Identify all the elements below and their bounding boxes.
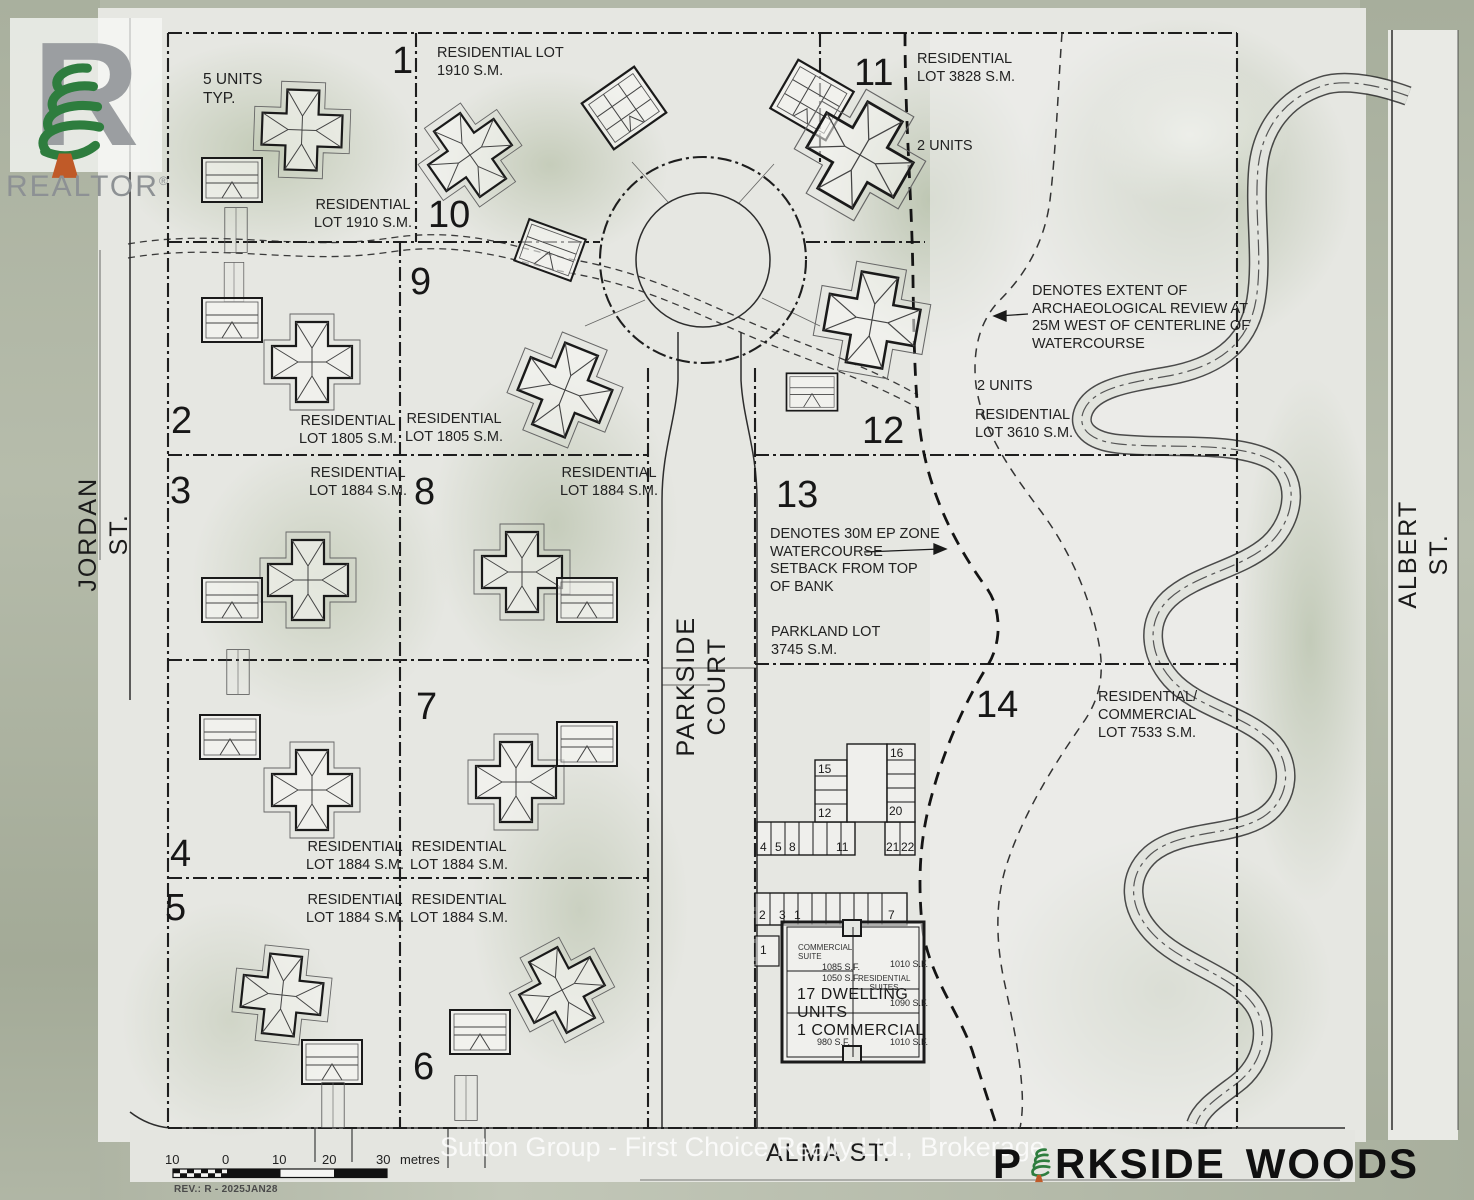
ep-zone-shading xyxy=(930,34,1237,1128)
lot-4-label: RESIDENTIAL LOT 1884 S.M. xyxy=(295,838,415,874)
unit-2: 2 xyxy=(759,908,766,923)
unit-11: 11 xyxy=(836,840,848,855)
scale-0: 0 xyxy=(222,1152,229,1168)
unit-8: 8 xyxy=(789,840,796,855)
lot-7-label: RESIDENTIAL LOT 1884 S.M. xyxy=(399,838,519,874)
lot-4-number: 4 xyxy=(170,831,191,879)
title-p: P xyxy=(993,1140,1023,1188)
title-rkside: RKSIDE xyxy=(1055,1140,1226,1188)
unit-4: 4 xyxy=(760,840,767,855)
realtor-wordmark: REALTOR® xyxy=(6,170,166,204)
lot-12-label: RESIDENTIAL LOT 3610 S.M. xyxy=(975,406,1073,442)
lot-14-number: 14 xyxy=(976,682,1018,730)
realtor-logo: R REALTOR® xyxy=(4,10,174,210)
title-pine-tree-icon xyxy=(1024,1142,1054,1188)
lot-2-label: RESIDENTIAL LOT 1805 S.M. xyxy=(288,412,408,448)
pine-tree-icon xyxy=(10,54,120,186)
unit-3: 3 xyxy=(779,908,786,923)
lot-11-number: 11 xyxy=(854,50,893,98)
realtor-text: REALTOR xyxy=(6,170,159,203)
lot-9-label: RESIDENTIAL LOT 1805 S.M. xyxy=(394,410,514,446)
lot-12-number: 12 xyxy=(862,408,904,456)
parkland-note: PARKLAND LOT 3745 S.M. xyxy=(771,623,880,659)
street-label-parkside-court: PARKSIDE COURT xyxy=(671,576,734,796)
lot-10-number: 10 xyxy=(428,192,470,240)
lot-6-label: RESIDENTIAL LOT 1884 S.M. xyxy=(399,891,519,927)
area-1090: 1090 S.F. xyxy=(890,998,928,1009)
lot-1-number: 1 xyxy=(392,38,413,86)
title-woods: WOODS xyxy=(1246,1140,1419,1188)
area-1085: 1085 S.F. xyxy=(822,962,860,973)
unit-5: 5 xyxy=(775,840,782,855)
lot-11-units: 2 UNITS xyxy=(917,137,973,155)
unit-15: 15 xyxy=(818,762,831,777)
registered-symbol: ® xyxy=(159,174,170,188)
lot-5-number: 5 xyxy=(165,885,186,933)
development-title: P RKSIDE WOODS xyxy=(993,1140,1419,1188)
lot-8-label: RESIDENTIAL LOT 1884 S.M. xyxy=(549,464,669,500)
lot-1-label: RESIDENTIAL LOT 1910 S.M. xyxy=(437,44,564,80)
lot-6-number: 6 xyxy=(413,1044,434,1092)
lot-3-label: RESIDENTIAL LOT 1884 S.M. xyxy=(298,464,418,500)
scale-30: 30 xyxy=(376,1152,390,1168)
unit-16: 16 xyxy=(890,746,903,761)
area-1010-bottom: 1010 S.F. xyxy=(890,1037,928,1048)
lot-10-label: RESIDENTIAL LOT 1910 S.M. xyxy=(303,196,423,232)
unit-22: 22 xyxy=(901,840,914,855)
site-plan-canvas: JORDAN ST. ALBERT ST. PARKSIDE COURT ALM… xyxy=(0,0,1474,1200)
lot-7-number: 7 xyxy=(416,684,437,732)
scale-unit: metres xyxy=(400,1152,440,1168)
lot-14-label: RESIDENTIAL/ COMMERCIAL LOT 7533 S.M. xyxy=(1098,688,1197,742)
brokerage-watermark: Sutton Group - First Choice Realty Ltd.,… xyxy=(440,1131,1045,1165)
five-units-note: 5 UNITS TYP. xyxy=(203,70,262,109)
unit-1b: 1 xyxy=(760,943,767,958)
area-1050: 1050 S.F. xyxy=(822,973,860,984)
street-label-albert: ALBERT ST. xyxy=(1393,479,1456,629)
lot-2-number: 2 xyxy=(171,398,192,446)
unit-12: 12 xyxy=(818,806,831,821)
unit-21: 21 xyxy=(886,840,899,855)
unit-1: 1 xyxy=(794,908,801,923)
street-label-jordan: JORDAN ST. xyxy=(73,459,136,609)
commercial-suite-label: COMMERCIAL SUITE xyxy=(798,943,852,961)
unit-20: 20 xyxy=(889,804,902,819)
scale-20: 20 xyxy=(322,1152,336,1168)
area-980: 980 S.F. xyxy=(817,1037,850,1048)
revision-note: REV.: R - 2025JAN28 xyxy=(174,1184,278,1197)
residential-suites-label: RESIDENTIAL SUITES xyxy=(858,974,910,992)
lot-3-number: 3 xyxy=(170,468,191,516)
dwelling-units-note: 17 DWELLING UNITS 1 COMMERCIAL xyxy=(797,986,925,1040)
scale-10-left: 10 xyxy=(165,1152,179,1168)
ep-zone-note: DENOTES 30M EP ZONE WATERCOURSE SETBACK … xyxy=(770,526,940,597)
scale-10: 10 xyxy=(272,1152,286,1168)
lot-12-units: 2 UNITS xyxy=(977,377,1033,395)
lot-11-label: RESIDENTIAL LOT 3828 S.M. xyxy=(917,50,1015,86)
lot-13-number: 13 xyxy=(776,472,818,520)
lot-5-label: RESIDENTIAL LOT 1884 S.M. xyxy=(295,891,415,927)
unit-7: 7 xyxy=(888,908,895,923)
arch-review-note: DENOTES EXTENT OF ARCHAEOLOGICAL REVIEW … xyxy=(1032,283,1250,354)
lot-9-number: 9 xyxy=(410,259,431,307)
area-1010-top: 1010 S.F. xyxy=(890,959,928,970)
